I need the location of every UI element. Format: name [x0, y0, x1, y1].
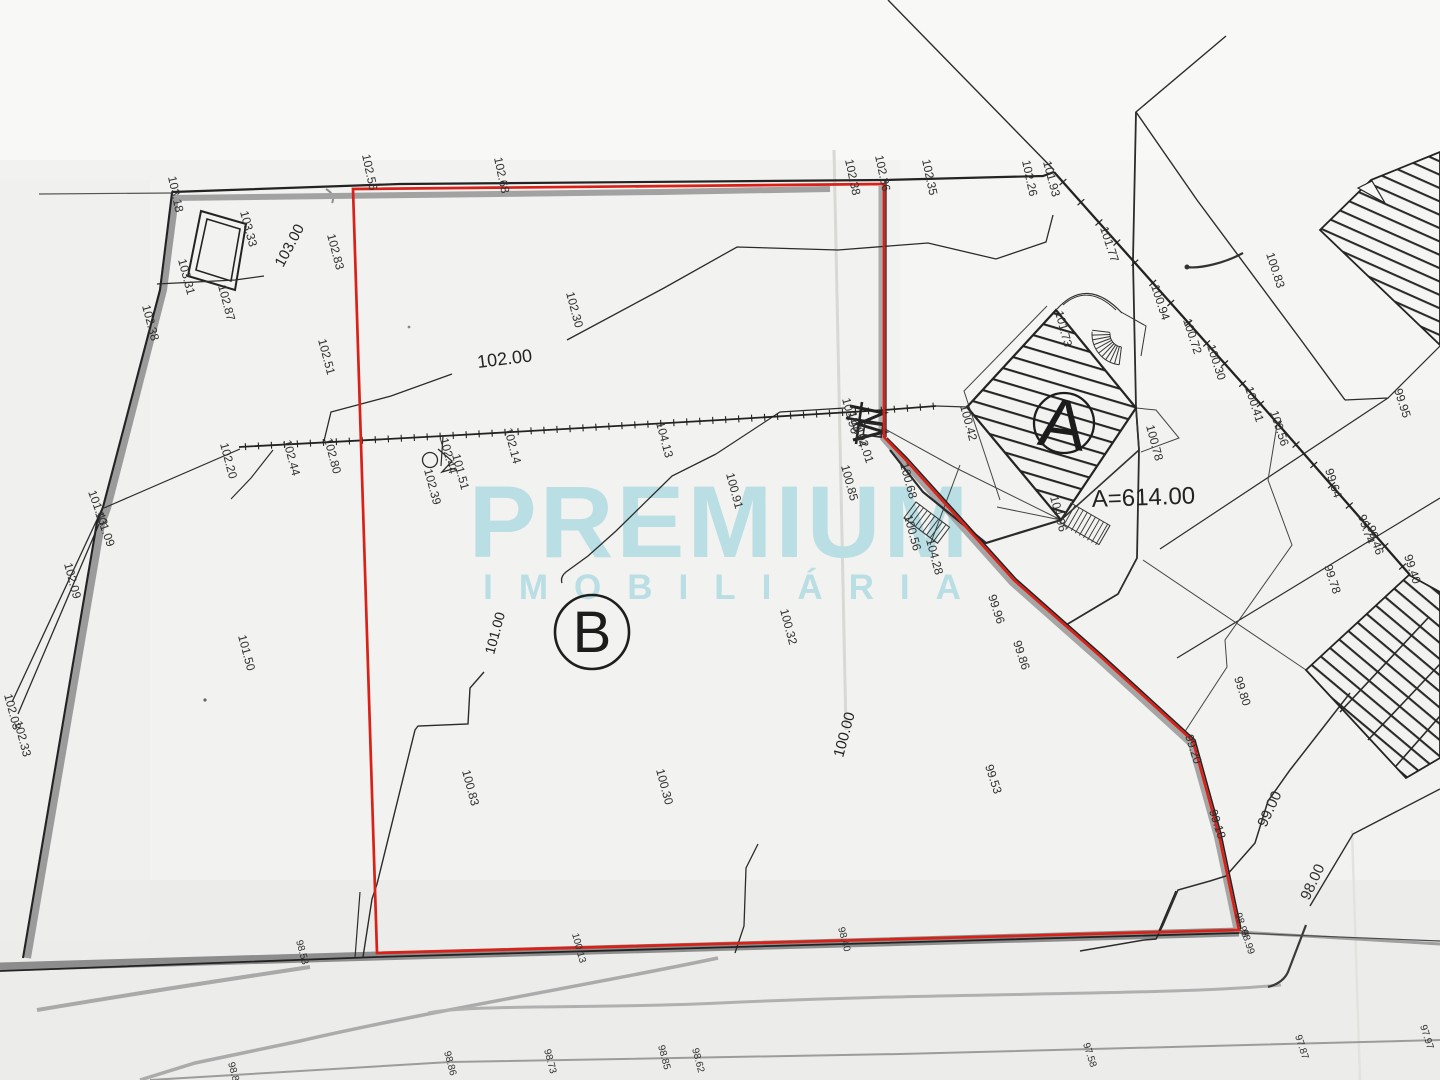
svg-text:PREMIUM: PREMIUM — [469, 465, 972, 579]
svg-text:A=614.00: A=614.00 — [1091, 482, 1195, 513]
svg-text:B: B — [573, 600, 612, 665]
svg-text:IMOBILIÁRIA: IMOBILIÁRIA — [483, 567, 987, 607]
